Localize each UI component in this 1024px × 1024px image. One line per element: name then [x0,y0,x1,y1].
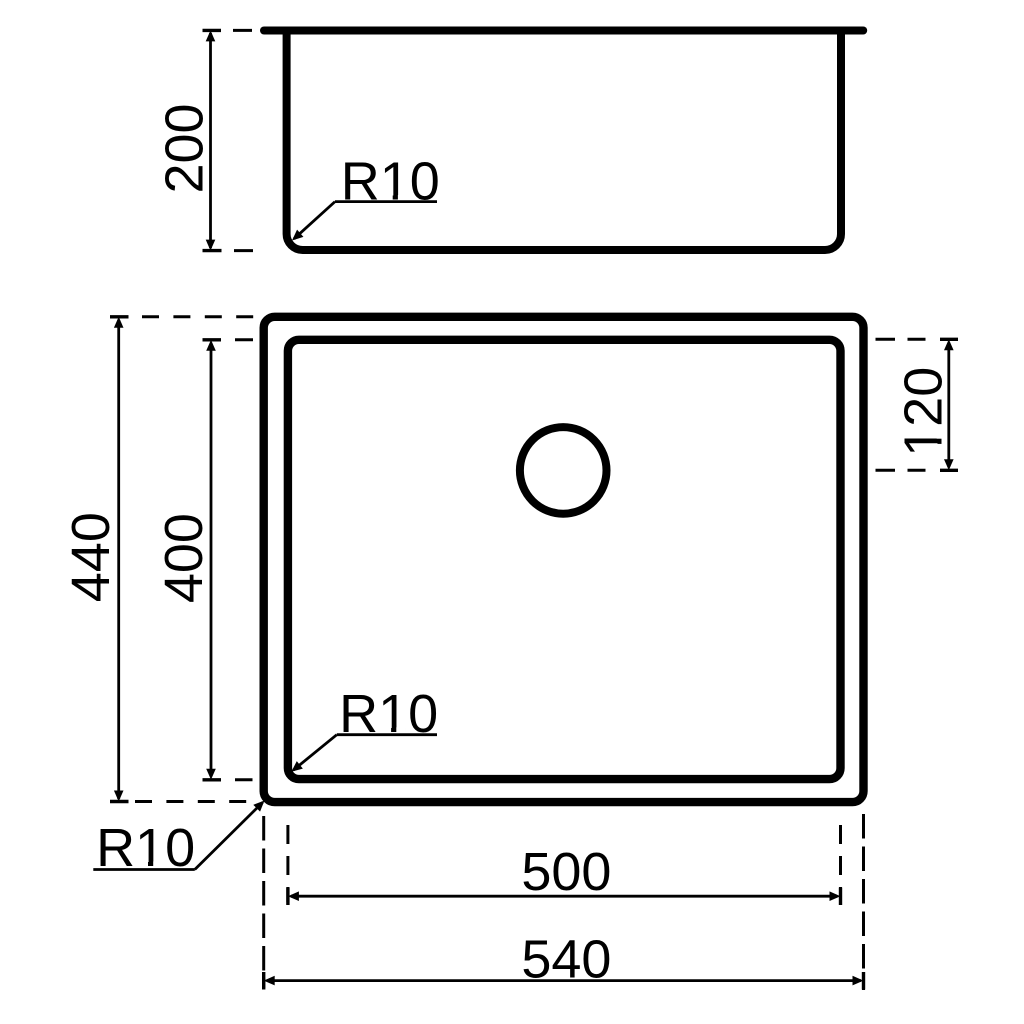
svg-text:400: 400 [154,513,214,603]
svg-text:500: 500 [521,842,611,902]
svg-text:540: 540 [521,930,611,990]
svg-text:440: 440 [61,512,121,602]
svg-text:200: 200 [155,103,215,193]
svg-text:120: 120 [894,367,954,457]
